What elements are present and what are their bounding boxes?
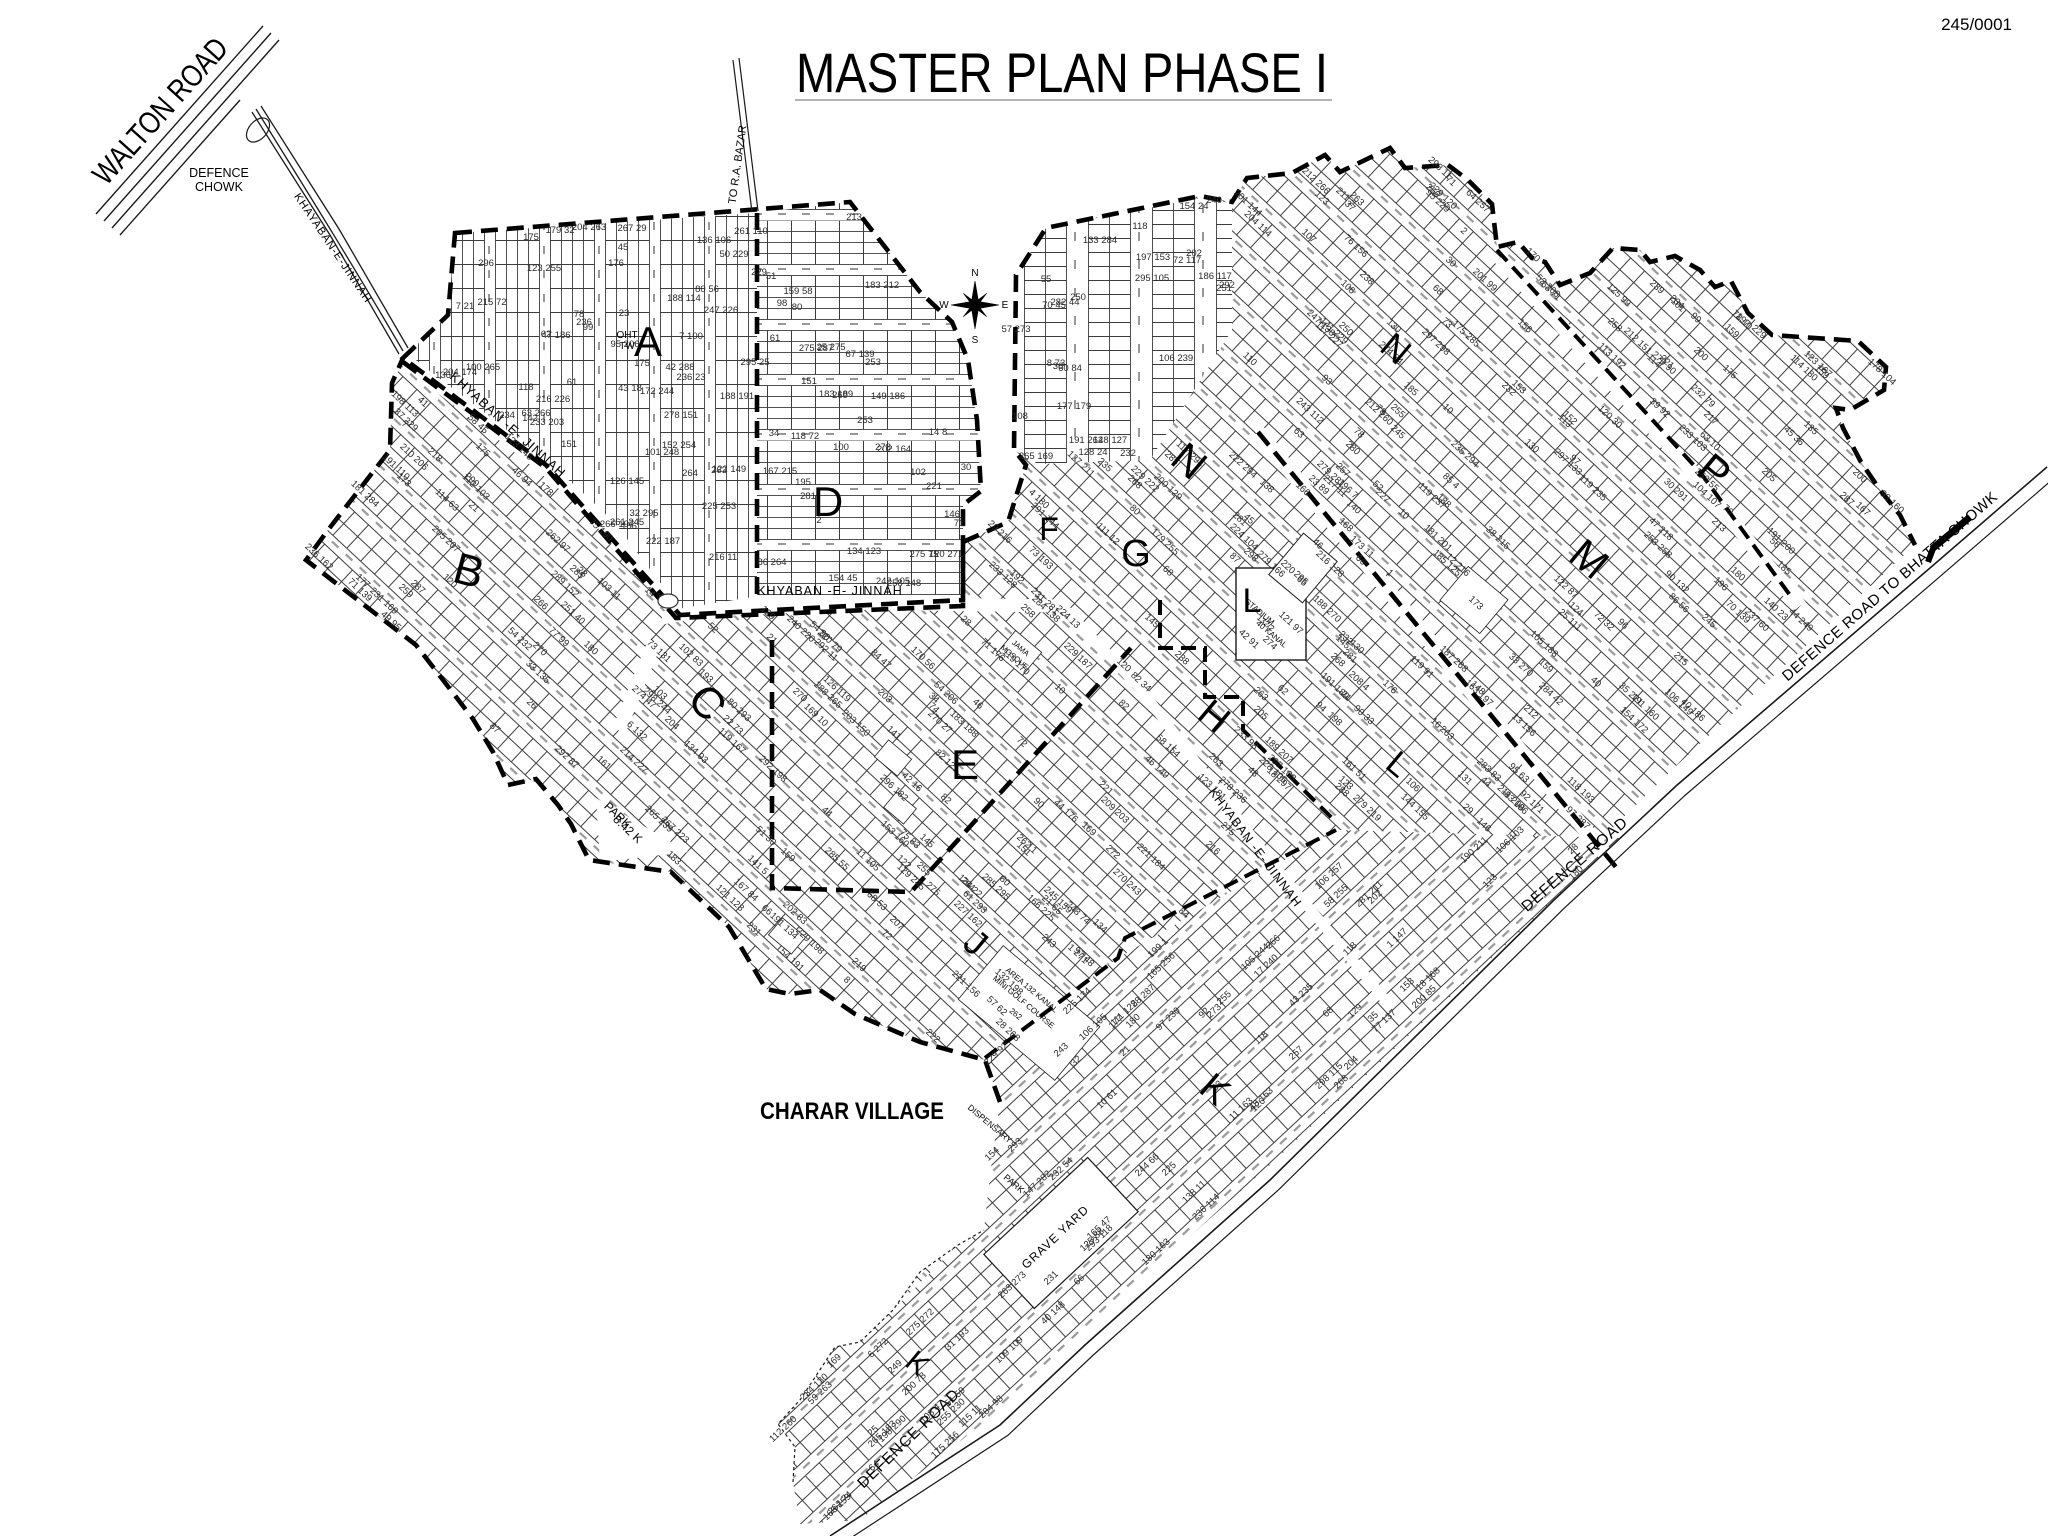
svg-text:154 45: 154 45 — [828, 573, 857, 584]
svg-text:234: 234 — [499, 410, 515, 421]
svg-text:7 100: 7 100 — [679, 331, 703, 342]
svg-text:197 153: 197 153 — [1136, 252, 1170, 263]
svg-text:51: 51 — [766, 271, 777, 282]
svg-text:242 105: 242 105 — [876, 576, 910, 587]
svg-text:216 226: 216 226 — [536, 394, 570, 405]
svg-text:232: 232 — [1120, 448, 1136, 459]
svg-text:126 145: 126 145 — [610, 476, 644, 487]
svg-text:136 106: 136 106 — [697, 235, 731, 246]
svg-text:G: G — [1121, 533, 1151, 575]
svg-text:118: 118 — [1132, 221, 1147, 232]
svg-text:175: 175 — [523, 232, 539, 243]
svg-text:295 25: 295 25 — [740, 357, 769, 368]
svg-text:278 151: 278 151 — [664, 410, 698, 421]
svg-text:188 191: 188 191 — [720, 391, 754, 402]
svg-text:195: 195 — [795, 477, 811, 488]
svg-text:L: L — [1243, 582, 1262, 620]
svg-text:106 239: 106 239 — [1159, 353, 1193, 364]
svg-text:225 253: 225 253 — [702, 501, 736, 512]
svg-text:136: 136 — [435, 370, 451, 381]
svg-text:134 123: 134 123 — [847, 546, 881, 557]
svg-text:100: 100 — [833, 442, 849, 453]
svg-text:99: 99 — [583, 322, 594, 333]
svg-text:128 24: 128 24 — [1078, 447, 1107, 458]
svg-text:275 75: 275 75 — [909, 549, 938, 560]
svg-text:43 18: 43 18 — [618, 383, 642, 394]
svg-text:CHARAR VILLAGE: CHARAR VILLAGE — [760, 1098, 944, 1125]
svg-text:295 105: 295 105 — [1135, 273, 1169, 284]
svg-text:TW: TW — [619, 341, 635, 352]
svg-text:34: 34 — [769, 428, 780, 439]
svg-text:229: 229 — [751, 267, 767, 278]
svg-text:61: 61 — [770, 333, 781, 344]
svg-text:251: 251 — [1216, 283, 1232, 294]
svg-text:222 187: 222 187 — [646, 536, 680, 547]
svg-text:F: F — [1039, 511, 1059, 547]
svg-text:152 254: 152 254 — [662, 440, 696, 451]
svg-text:70 45: 70 45 — [1042, 300, 1066, 311]
svg-text:233 203: 233 203 — [530, 417, 564, 428]
svg-text:240: 240 — [1206, 195, 1222, 206]
svg-text:102: 102 — [910, 467, 926, 478]
svg-text:176: 176 — [608, 258, 624, 269]
svg-text:S: S — [972, 335, 979, 346]
svg-text:247 226: 247 226 — [704, 305, 738, 316]
svg-text:98: 98 — [777, 298, 788, 309]
svg-text:7 21: 7 21 — [456, 301, 475, 312]
svg-text:213: 213 — [846, 212, 862, 223]
svg-text:146: 146 — [944, 509, 960, 520]
svg-text:159 58: 159 58 — [783, 286, 812, 297]
svg-text:32 295: 32 295 — [629, 508, 658, 519]
svg-text:265 169: 265 169 — [1019, 451, 1053, 462]
svg-text:E: E — [1002, 300, 1009, 311]
svg-text:253: 253 — [857, 415, 873, 426]
svg-text:261 110: 261 110 — [734, 226, 768, 237]
svg-text:MASTER PLAN PHASE I: MASTER PLAN PHASE I — [796, 41, 1328, 104]
svg-text:215 72: 215 72 — [477, 297, 506, 308]
svg-text:57 273: 57 273 — [1001, 324, 1030, 335]
svg-text:60 84: 60 84 — [1058, 363, 1082, 374]
svg-text:D: D — [813, 478, 843, 525]
svg-text:118: 118 — [518, 382, 533, 393]
svg-text:172 244: 172 244 — [640, 386, 674, 397]
svg-text:154 24: 154 24 — [1179, 201, 1208, 212]
svg-text:202: 202 — [1186, 248, 1202, 259]
svg-text:188 114: 188 114 — [667, 293, 701, 304]
svg-text:275 287: 275 287 — [799, 343, 833, 354]
svg-text:55: 55 — [1041, 274, 1052, 285]
svg-text:108: 108 — [1012, 411, 1028, 422]
svg-text:151: 151 — [561, 439, 577, 450]
svg-text:183 189: 183 189 — [819, 389, 853, 400]
svg-text:221: 221 — [926, 481, 942, 492]
svg-text:183 212: 183 212 — [865, 280, 899, 291]
svg-text:216 11: 216 11 — [709, 552, 737, 563]
svg-text:253: 253 — [865, 357, 881, 368]
svg-text:266 197: 266 197 — [600, 519, 634, 530]
svg-text:50 229: 50 229 — [719, 249, 748, 260]
svg-text:177 179: 177 179 — [1057, 401, 1091, 412]
svg-text:186 117: 186 117 — [1198, 271, 1232, 282]
svg-text:191 262: 191 262 — [1069, 435, 1103, 446]
svg-text:61: 61 — [567, 377, 578, 388]
svg-text:DEFENCE: DEFENCE — [189, 166, 249, 180]
svg-text:80: 80 — [792, 302, 803, 313]
svg-text:179 32: 179 32 — [545, 225, 574, 236]
svg-text:296: 296 — [478, 258, 494, 269]
svg-text:W: W — [939, 300, 949, 311]
svg-text:133 284: 133 284 — [1083, 235, 1117, 246]
svg-text:264: 264 — [682, 468, 698, 479]
svg-text:86 264: 86 264 — [757, 557, 786, 568]
svg-text:CHOWK: CHOWK — [195, 180, 244, 194]
svg-text:30: 30 — [961, 462, 972, 473]
svg-text:245/0001: 245/0001 — [1941, 15, 2012, 34]
svg-text:149 186: 149 186 — [871, 391, 905, 402]
svg-text:45: 45 — [618, 242, 629, 253]
svg-text:23: 23 — [619, 308, 630, 319]
svg-text:267 29: 267 29 — [617, 223, 646, 234]
svg-text:100 265: 100 265 — [466, 362, 500, 373]
svg-text:151: 151 — [801, 376, 817, 387]
svg-text:202 164: 202 164 — [877, 444, 911, 455]
svg-text:A: A — [634, 318, 662, 365]
svg-text:236 23: 236 23 — [676, 372, 705, 383]
svg-text:E: E — [951, 741, 979, 788]
svg-text:204 263: 204 263 — [572, 222, 606, 233]
svg-text:N: N — [971, 268, 978, 279]
svg-text:123 255: 123 255 — [527, 263, 561, 274]
svg-text:167 215: 167 215 — [763, 466, 797, 477]
svg-text:OHT: OHT — [616, 330, 637, 341]
svg-text:14 8: 14 8 — [929, 427, 948, 438]
svg-text:118 72: 118 72 — [791, 431, 819, 442]
svg-text:263: 263 — [711, 465, 727, 476]
svg-text:47 186: 47 186 — [541, 330, 570, 341]
